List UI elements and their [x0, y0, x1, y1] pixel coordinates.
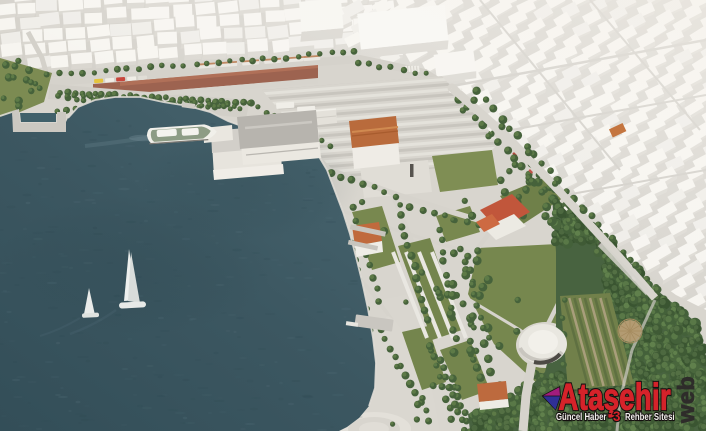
- svg-text:Güncel Haber: Güncel Haber: [556, 411, 607, 422]
- svg-text:Rehber Sitesi: Rehber Sitesi: [625, 411, 675, 422]
- svg-text:3: 3: [613, 409, 621, 424]
- svg-text:web: web: [673, 376, 699, 424]
